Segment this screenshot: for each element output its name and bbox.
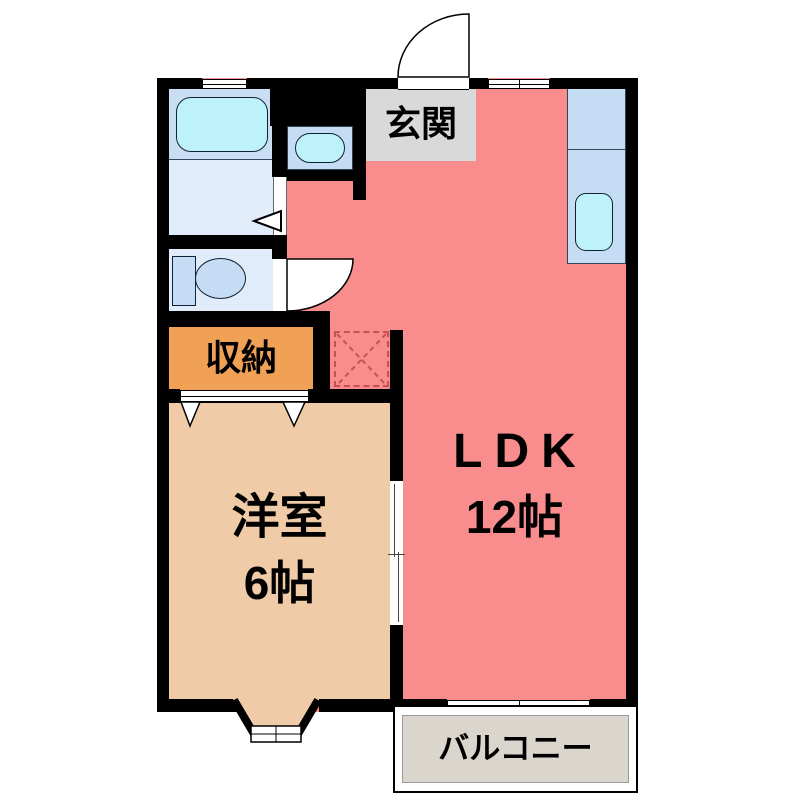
western-sliding-door — [390, 481, 403, 625]
ldk-size: 12帖 — [403, 494, 626, 540]
refrigerator-space — [334, 331, 389, 387]
entrance-door-arc — [398, 14, 469, 77]
wall-bath-right — [272, 126, 287, 177]
window-ldk-top — [488, 79, 550, 89]
bay-window-glass — [251, 726, 301, 742]
wall-western-ldk-bottom — [390, 625, 403, 712]
wall-western-ldk-top — [390, 330, 403, 483]
wall-washroom-toilet — [157, 235, 287, 249]
wall-top-1 — [157, 78, 202, 89]
wall-bottom-1 — [157, 699, 236, 712]
wall-outer-right — [626, 78, 638, 712]
wall-top-3 — [366, 78, 398, 89]
room-western — [169, 403, 390, 700]
toilet-door-gap — [273, 259, 287, 311]
western-sliding-door-tick — [388, 554, 405, 555]
wall-top-2 — [247, 78, 270, 89]
entrance-label: 玄関 — [366, 106, 476, 142]
western-sliding-door-line1 — [394, 484, 395, 557]
wall-closet-bottom-left — [157, 389, 180, 403]
storage-door-track-line — [181, 396, 308, 397]
window-bathroom-line — [203, 84, 246, 85]
ldk-label: LDK — [403, 428, 626, 476]
room-washroom — [169, 160, 274, 235]
washroom-door-gap — [273, 177, 287, 235]
wall-top-5 — [550, 78, 638, 89]
kitchen-sink — [575, 193, 613, 251]
window-ldk-top-tick — [519, 80, 520, 88]
bathtub — [176, 97, 268, 152]
kitchen-counter-divider — [567, 149, 626, 150]
wall-entrance-block — [270, 78, 366, 126]
toilet-bowl — [195, 258, 246, 299]
washbasin — [295, 133, 345, 163]
floor-plan: 玄関 収納 洋室 6帖 LDK 12帖 バルコニー — [0, 0, 800, 800]
wall-top-4 — [469, 78, 488, 89]
toilet-tank — [172, 256, 196, 306]
wall-genkan-left — [353, 126, 366, 200]
wall-below-toilet — [157, 311, 330, 327]
balcony-label: バルコニー — [402, 733, 629, 764]
entrance-door-gap — [398, 78, 469, 90]
western-room-label: 洋室 — [169, 494, 390, 542]
wall-toilet-right-top — [272, 249, 287, 259]
storage-label: 収納 — [169, 340, 313, 376]
wall-closet-bottom-right — [308, 389, 403, 403]
western-room-size: 6帖 — [169, 560, 390, 606]
window-bathroom — [202, 79, 247, 89]
wall-under-basin — [287, 170, 353, 181]
western-sliding-door-line2 — [398, 552, 399, 622]
storage-door-track — [180, 390, 309, 402]
